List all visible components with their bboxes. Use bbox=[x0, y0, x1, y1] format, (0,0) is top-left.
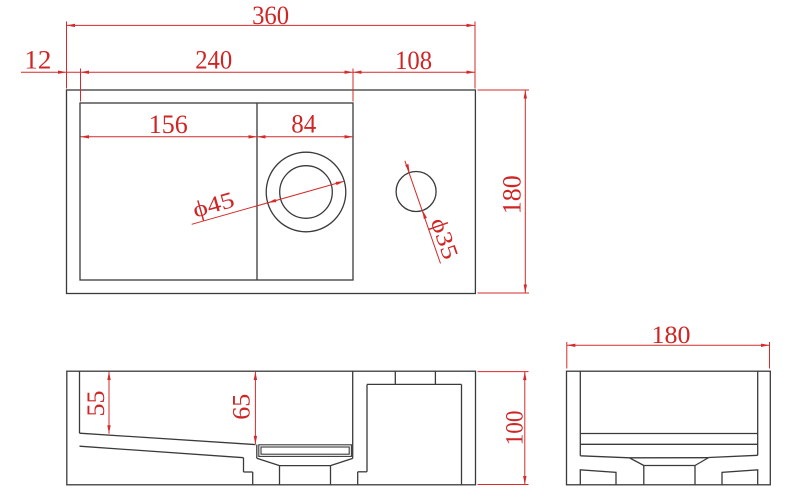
svg-text:ϕ45: ϕ45 bbox=[190, 187, 237, 222]
svg-text:360: 360 bbox=[252, 1, 289, 30]
svg-text:240: 240 bbox=[195, 46, 232, 75]
svg-text:55: 55 bbox=[83, 391, 110, 417]
svg-text:100: 100 bbox=[501, 410, 528, 445]
svg-text:ϕ35: ϕ35 bbox=[426, 215, 463, 263]
svg-text:84: 84 bbox=[291, 110, 316, 139]
svg-text:65: 65 bbox=[228, 394, 255, 420]
svg-text:180: 180 bbox=[498, 175, 527, 214]
svg-text:156: 156 bbox=[149, 110, 188, 139]
svg-text:108: 108 bbox=[395, 46, 432, 75]
svg-text:180: 180 bbox=[652, 322, 691, 349]
svg-text:12: 12 bbox=[24, 46, 51, 75]
